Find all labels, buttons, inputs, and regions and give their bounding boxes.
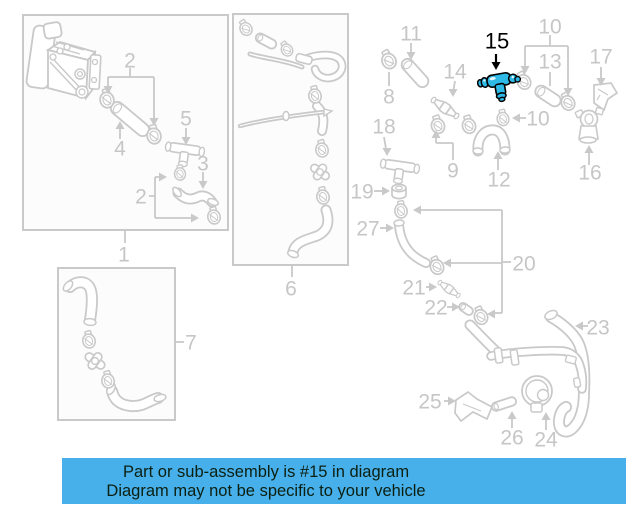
grommet-ring-glyph: [392, 184, 406, 198]
hose-clamp-glyph: [495, 108, 510, 126]
banner-line-2: Diagram may not be specific to your vehi…: [62, 482, 470, 501]
tee-fitting-glyph: [378, 159, 420, 186]
parts-diagram-canvas: 2453216711814151013171891012161927202122…: [0, 0, 640, 512]
part-label-14[interactable]: 14: [443, 61, 467, 84]
part-label-11[interactable]: 11: [400, 23, 422, 46]
part-label-16[interactable]: 16: [578, 162, 601, 185]
part-label-10b[interactable]: 10: [526, 108, 549, 131]
part-label-23[interactable]: 23: [586, 317, 609, 340]
part-label-3[interactable]: 3: [197, 153, 209, 176]
part-label-4[interactable]: 4: [114, 138, 126, 161]
part-label-18[interactable]: 18: [372, 116, 395, 139]
part-label-10[interactable]: 10: [538, 16, 561, 39]
part-label-12[interactable]: 12: [487, 169, 510, 192]
part-label-17[interactable]: 17: [589, 46, 612, 69]
banner-text: Part or sub-assembly is #15 in diagram D…: [62, 458, 470, 500]
hose-clamp-glyph: [427, 255, 446, 277]
part-label-24[interactable]: 24: [534, 429, 558, 452]
hose-clamp-glyph: [378, 48, 399, 71]
valve-16-glyph: [575, 107, 604, 143]
part-label-5[interactable]: 5: [180, 108, 192, 131]
part-label-9[interactable]: 9: [447, 160, 459, 183]
part-label-22[interactable]: 22: [424, 297, 447, 320]
part-label-8[interactable]: 8: [383, 86, 395, 109]
part-label-21[interactable]: 21: [402, 277, 425, 300]
part-label-7[interactable]: 7: [185, 332, 197, 355]
status-banner: Part or sub-assembly is #15 in diagram D…: [62, 458, 626, 504]
part-label-13[interactable]: 13: [538, 51, 561, 74]
part-label-15[interactable]: 15: [485, 29, 509, 54]
bracket-17-glyph: [594, 83, 617, 110]
shield-25-glyph: [455, 392, 492, 421]
part-label-2b[interactable]: 2: [135, 186, 147, 209]
part-label-6[interactable]: 6: [285, 278, 297, 301]
part-label-25[interactable]: 25: [418, 391, 441, 414]
parts-diagram-page: 2453216711814151013171891012161927202122…: [0, 0, 640, 512]
part-label-20[interactable]: 20: [512, 253, 535, 276]
part-label-1[interactable]: 1: [118, 244, 130, 267]
hose-clamp-glyph: [459, 114, 477, 135]
highlighted-part-15[interactable]: [477, 70, 524, 105]
hose-clamp-glyph: [428, 114, 446, 135]
banner-line-1: Part or sub-assembly is #15 in diagram: [62, 463, 470, 482]
part-label-27[interactable]: 27: [356, 218, 379, 241]
part-label-26[interactable]: 26: [500, 427, 523, 450]
canister-24-glyph: [522, 376, 552, 412]
hose-clamp-glyph: [393, 200, 408, 219]
part-label-2[interactable]: 2: [124, 50, 136, 73]
part-label-19[interactable]: 19: [350, 181, 373, 204]
